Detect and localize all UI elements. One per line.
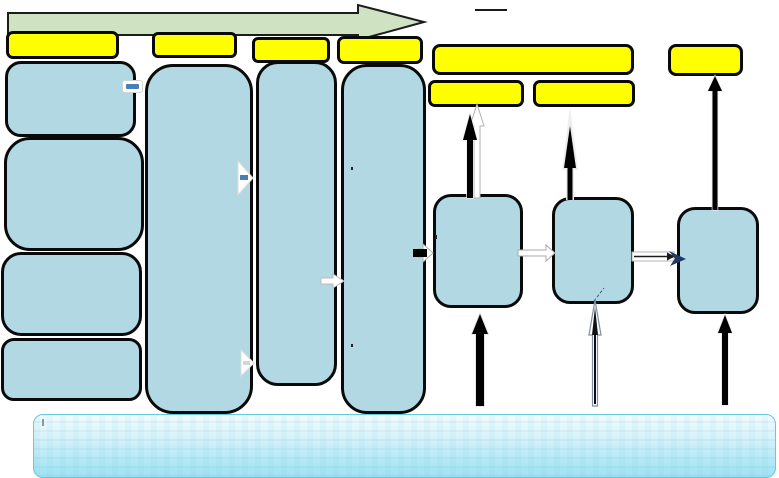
stage-3-column [256,61,337,386]
banner-text-cursor [42,419,44,426]
stage-1-item-2 [4,137,144,251]
white-block-arrow-icon [320,272,348,290]
bottom-banner [33,414,776,478]
black-up-arrow-node2 [556,100,590,204]
black-up-arrow-below-node1 [466,310,494,410]
speck-3 [435,235,437,239]
stage-1-item-1 [5,61,136,137]
white-right-arrow-glyph-icon [232,160,258,198]
stage-1-label [6,31,119,59]
thin-outline-up-arrow-below-node2 [583,287,609,411]
white-right-arrow-node1-node2 [518,243,558,263]
diagram-canvas [0,0,779,478]
stage-4-column [341,64,426,414]
right-node-3 [677,207,759,314]
speck-1 [351,167,353,170]
speck-2 [351,344,353,347]
black-up-arrow-node3 [702,73,730,213]
blue-dash [126,84,139,89]
stage-5-wide-label [432,44,634,75]
stage-1-item-3 [1,252,142,336]
top-rule-line [475,9,507,11]
stage-4-label [337,36,423,64]
stage-3-label [252,37,330,63]
outline-right-arrow-node2-node3 [631,246,689,272]
right-node-1 [433,194,523,308]
black-up-arrow-node1 [458,100,490,202]
stage-2-label [152,32,237,58]
dash-right-arrow-into-node1 [410,241,440,265]
stage-6-label [668,44,743,76]
blue-dash-pill-icon [122,80,143,93]
stage-1-item-4 [1,338,142,401]
white-right-arrow-glyph-small-icon [236,349,260,379]
black-up-arrow-below-node3 [711,311,739,407]
